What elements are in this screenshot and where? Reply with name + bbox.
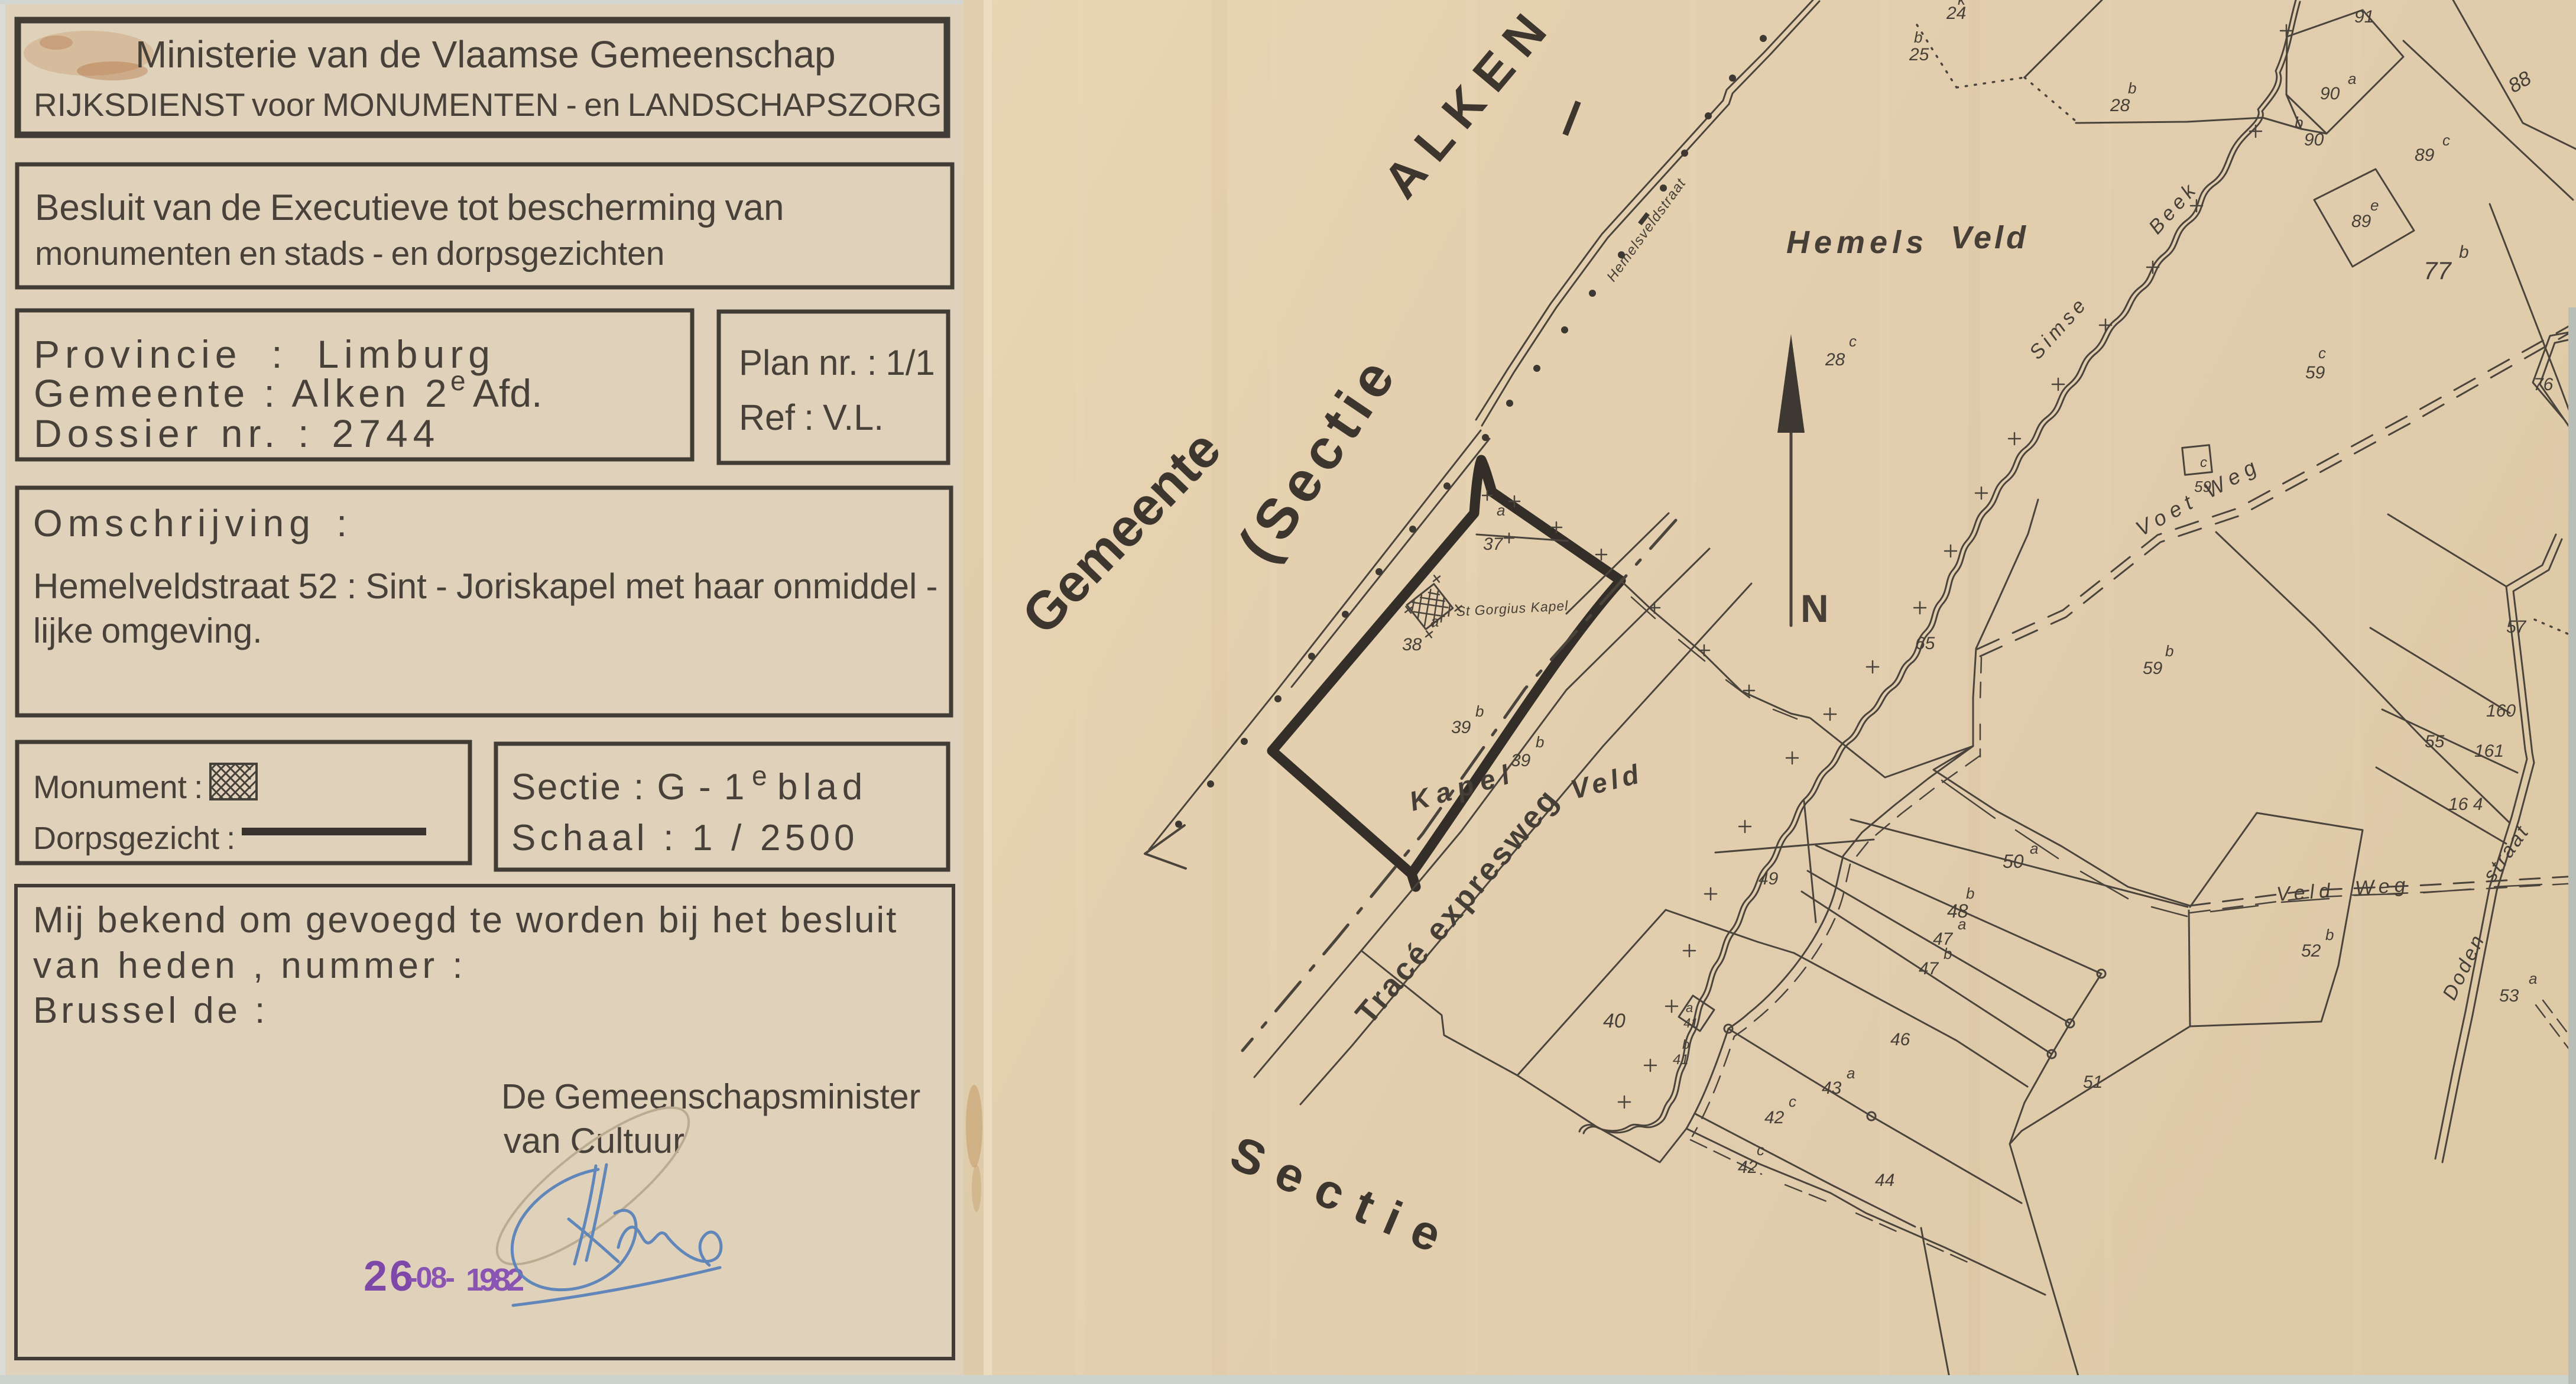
svg-text:53: 53	[2499, 986, 2519, 1006]
svg-text:16 4: 16 4	[2448, 795, 2483, 814]
svg-text:monumenten en stads - en d: monumenten en stads - en dorpsgezichten	[35, 235, 665, 273]
svg-text:a: a	[1958, 915, 1966, 933]
svg-text:39: 39	[1451, 718, 1471, 737]
svg-text:47: 47	[1919, 959, 1939, 978]
svg-text:Plan nr. : 1/1: Plan nr. : 1/1	[739, 343, 935, 383]
svg-text:161: 161	[2474, 741, 2504, 761]
svg-text:41: 41	[1683, 1016, 1698, 1030]
svg-text:Gemeente : Alken 2: Gemeente : Alken 2	[34, 371, 451, 415]
svg-text:b: b	[1682, 1037, 1689, 1052]
svg-text:Ref : V.L.: Ref : V.L.	[739, 397, 884, 437]
svg-text:c: c	[2442, 131, 2450, 149]
svg-text:b: b	[2165, 642, 2173, 660]
svg-text:Hemelveldstraat 52 : Sint - J: Hemelveldstraat 52 : Sint - Joriskapel m…	[33, 566, 938, 606]
svg-text:Ministerie van de Vlaamse: Ministerie van de Vlaamse Gemeenschap	[135, 33, 836, 76]
svg-text:a: a	[1497, 501, 1505, 519]
svg-text:Besluit van de Executieve: Besluit van de Executieve tot beschermin…	[35, 187, 784, 228]
svg-text:a: a	[1847, 1064, 1855, 1082]
svg-text:59: 59	[2194, 478, 2211, 495]
svg-text:43: 43	[1822, 1078, 1842, 1098]
svg-text:25: 25	[1909, 45, 1929, 64]
svg-text:b: b	[2459, 242, 2469, 262]
svg-text:a: a	[1686, 1000, 1693, 1015]
svg-text:Monument :: Monument :	[33, 769, 203, 805]
svg-text:52: 52	[2301, 941, 2321, 961]
svg-text:c: c	[1757, 1141, 1764, 1159]
svg-text:b: b	[1475, 702, 1484, 720]
svg-text:Mij bekend om gevoegd te: Mij bekend om gevoegd te worden bij het …	[33, 900, 898, 941]
svg-text:Brussel de :: Brussel de :	[33, 990, 268, 1031]
svg-text:40: 40	[1603, 1010, 1626, 1032]
svg-text:160: 160	[2486, 701, 2516, 721]
svg-text:59: 59	[2143, 659, 2163, 678]
svg-text:a: a	[2529, 970, 2537, 987]
svg-text:e: e	[450, 365, 466, 396]
svg-text:Dossier nr. : 2744: Dossier nr. : 2744	[34, 411, 440, 455]
svg-text:Veld: Veld	[1951, 220, 2029, 255]
svg-text:Hemels: Hemels	[1786, 225, 1928, 260]
svg-text:van heden , nummer :: van heden , nummer :	[33, 945, 466, 986]
svg-text:b: b	[1944, 945, 1952, 962]
svg-text:Veld: Veld	[2276, 879, 2335, 906]
svg-text:lijke omgeving.: lijke omgeving.	[33, 611, 262, 650]
svg-text:a: a	[1430, 612, 1439, 630]
svg-text:-08-: -08-	[408, 1261, 454, 1294]
svg-text:28: 28	[2110, 96, 2130, 115]
svg-text:b: b	[1914, 28, 1922, 46]
svg-text:41: 41	[1673, 1052, 1689, 1068]
svg-text:89: 89	[2351, 212, 2371, 231]
svg-text:c: c	[2318, 344, 2326, 362]
svg-text:N: N	[1800, 586, 1829, 630]
svg-text:50: 50	[2003, 851, 2024, 872]
svg-text:38: 38	[1402, 635, 1422, 654]
svg-text:b: b	[2325, 926, 2334, 944]
svg-text:Afd.: Afd.	[473, 371, 542, 415]
svg-text:44: 44	[1875, 1171, 1894, 1190]
svg-text:37: 37	[1483, 534, 1504, 554]
svg-text:b: b	[2295, 114, 2303, 131]
svg-text:a: a	[2348, 70, 2356, 87]
svg-text:Schaal : 1 / 2500: Schaal : 1 / 2500	[511, 818, 859, 858]
svg-text:a: a	[2030, 840, 2038, 857]
svg-text:65: 65	[1915, 634, 1935, 653]
svg-text:Omschrijving :: Omschrijving :	[33, 502, 352, 544]
svg-text:39: 39	[1511, 751, 1531, 770]
svg-text:55: 55	[2425, 732, 2445, 751]
svg-text:77: 77	[2423, 257, 2452, 284]
svg-text:blad: blad	[777, 767, 868, 808]
svg-text:89: 89	[2415, 145, 2435, 165]
svg-text:b: b	[1966, 884, 1974, 902]
svg-text:46: 46	[1890, 1030, 1910, 1049]
svg-text:Dorpsgezicht :: Dorpsgezicht :	[33, 821, 235, 856]
svg-text:k: k	[1958, 0, 1967, 8]
svg-text:76: 76	[2533, 375, 2554, 394]
svg-text:49: 49	[1759, 869, 1779, 889]
svg-text:De Gemeenschapsminister: De Gemeenschapsminister	[501, 1077, 920, 1116]
svg-text:Weg: Weg	[2354, 874, 2411, 900]
svg-text:b: b	[1536, 733, 1544, 751]
svg-text:42: 42	[1738, 1158, 1758, 1177]
svg-text:59: 59	[2305, 363, 2325, 383]
svg-text:28: 28	[1825, 350, 1845, 370]
svg-text:51: 51	[2083, 1072, 2103, 1092]
svg-text:57: 57	[2506, 617, 2527, 637]
svg-text:90: 90	[2320, 84, 2340, 103]
svg-text:c: c	[2200, 455, 2207, 471]
svg-text:b: b	[2128, 79, 2136, 97]
svg-text:c: c	[1789, 1093, 1796, 1110]
svg-text:c: c	[1849, 332, 1857, 350]
svg-text:e: e	[2370, 196, 2379, 214]
svg-text:91: 91	[2354, 7, 2374, 27]
svg-text:Provincie : Limburg: Provincie : Limburg	[34, 332, 495, 376]
svg-text:90: 90	[2304, 130, 2324, 150]
svg-text:RIJKSDIENST voor MONUMENTEN: RIJKSDIENST voor MONUMENTEN - en LANDSCH…	[34, 86, 942, 123]
svg-text:42: 42	[1764, 1108, 1785, 1127]
svg-text:e: e	[752, 760, 767, 791]
svg-text:Sectie : G - 1: Sectie : G - 1	[511, 767, 746, 808]
